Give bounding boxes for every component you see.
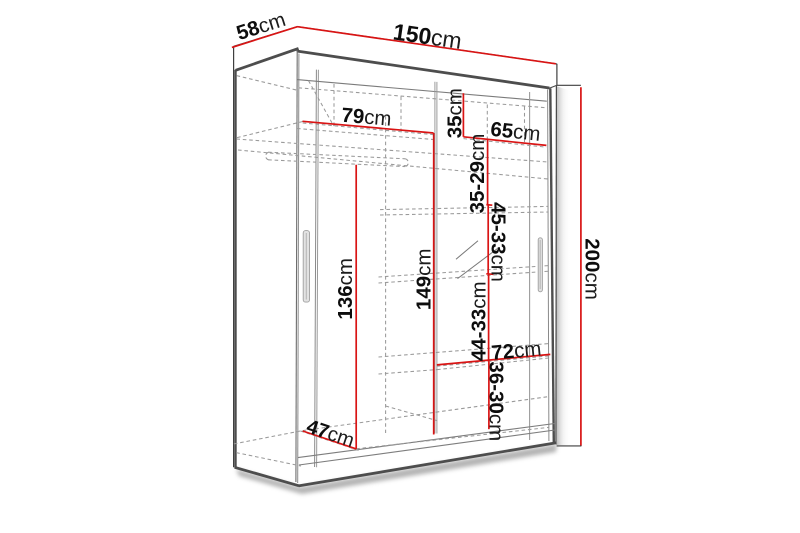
svg-text:79cm: 79cm xyxy=(341,103,393,130)
svg-text:45-33cm: 45-33cm xyxy=(487,202,510,282)
svg-text:44-33cm: 44-33cm xyxy=(467,281,490,361)
svg-text:72cm: 72cm xyxy=(490,337,542,365)
svg-text:35-29cm: 35-29cm xyxy=(466,134,489,214)
svg-text:149cm: 149cm xyxy=(412,249,435,311)
svg-text:35cm: 35cm xyxy=(443,88,466,138)
svg-text:136cm: 136cm xyxy=(334,258,357,320)
svg-text:200cm: 200cm xyxy=(581,238,604,300)
svg-text:36-30cm: 36-30cm xyxy=(485,361,508,441)
